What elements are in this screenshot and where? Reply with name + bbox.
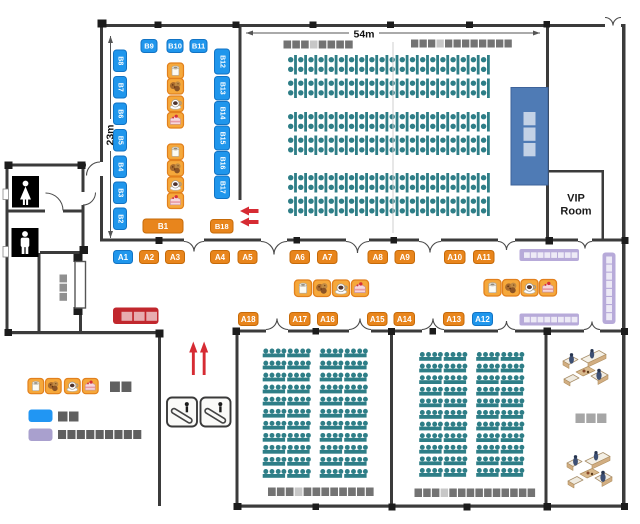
svg-text:A3: A3 <box>170 253 181 262</box>
svg-text:A5: A5 <box>242 253 253 262</box>
svg-text:A7: A7 <box>322 253 333 262</box>
svg-text:B11: B11 <box>192 42 205 51</box>
svg-text:A10: A10 <box>447 253 462 262</box>
svg-text:B4: B4 <box>117 162 124 171</box>
svg-text:B7: B7 <box>117 83 124 92</box>
svg-text:A6: A6 <box>295 253 306 262</box>
svg-text:VIP: VIP <box>567 193 585 205</box>
svg-text:B3: B3 <box>117 188 124 197</box>
svg-text:A15: A15 <box>370 315 385 324</box>
svg-text:A13: A13 <box>446 315 461 324</box>
svg-text:A2: A2 <box>144 253 155 262</box>
svg-text:A18: A18 <box>241 315 256 324</box>
svg-text:B14: B14 <box>219 107 226 120</box>
svg-text:B13: B13 <box>219 82 226 95</box>
svg-text:B16: B16 <box>219 157 226 170</box>
svg-text:A4: A4 <box>215 253 226 262</box>
svg-text:A16: A16 <box>320 315 335 324</box>
svg-text:B8: B8 <box>117 56 124 65</box>
svg-text:Room: Room <box>560 206 591 218</box>
svg-text:B1: B1 <box>158 222 169 231</box>
svg-text:B17: B17 <box>219 181 226 194</box>
svg-text:A8: A8 <box>373 253 384 262</box>
svg-text:A11: A11 <box>477 253 492 262</box>
svg-text:B10: B10 <box>168 42 182 51</box>
svg-text:B6: B6 <box>117 109 124 118</box>
svg-text:B9: B9 <box>144 42 154 51</box>
svg-text:B18: B18 <box>215 222 229 231</box>
svg-text:54m: 54m <box>353 29 374 41</box>
svg-text:A1: A1 <box>118 253 129 262</box>
svg-text:B15: B15 <box>219 132 226 145</box>
svg-text:A12: A12 <box>475 315 490 324</box>
svg-text:B5: B5 <box>117 136 124 145</box>
svg-text:B2: B2 <box>117 214 124 223</box>
svg-text:A14: A14 <box>397 315 412 324</box>
svg-text:B12: B12 <box>219 55 226 68</box>
svg-text:A17: A17 <box>292 315 307 324</box>
svg-text:A9: A9 <box>400 253 411 262</box>
